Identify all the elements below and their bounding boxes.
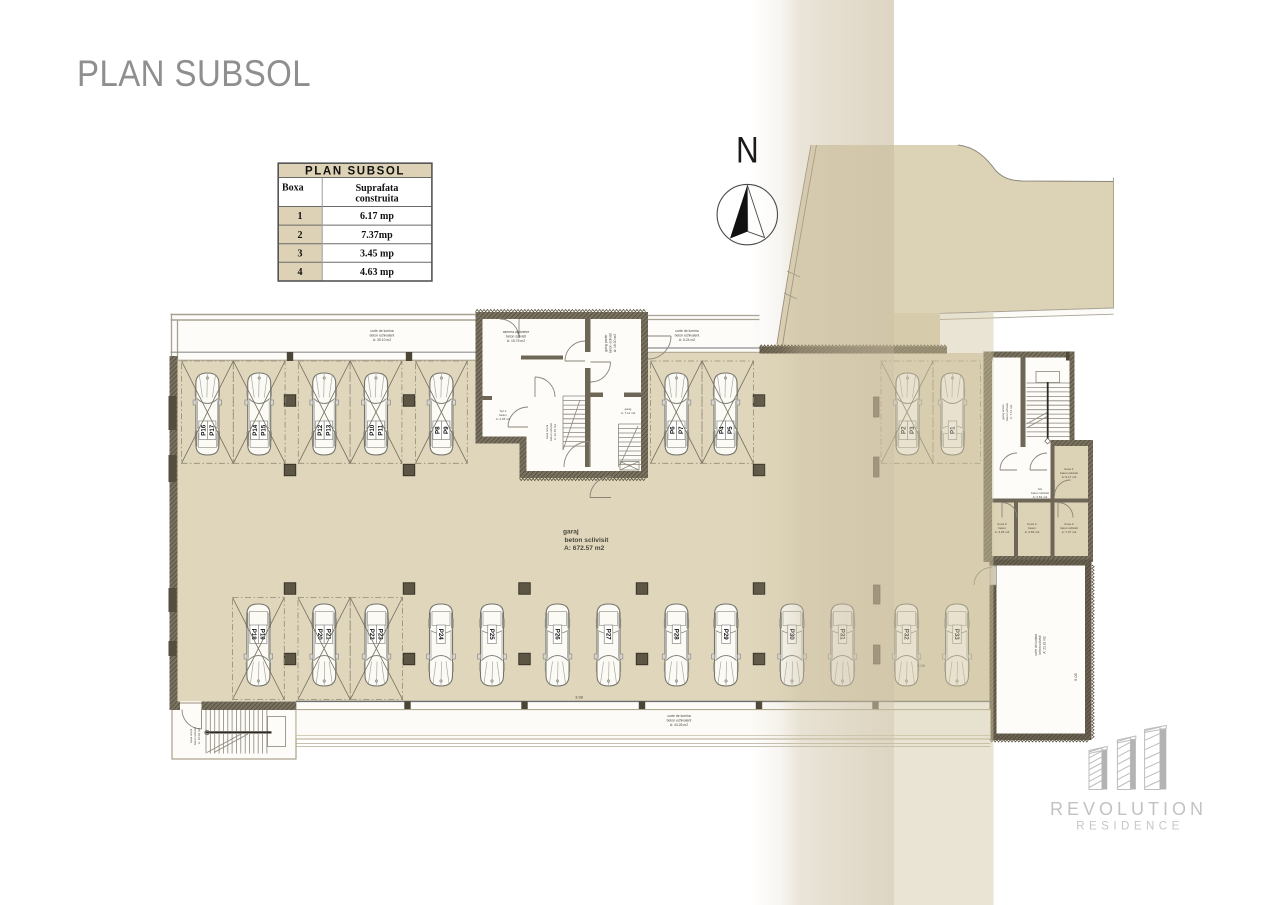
svg-text:PLAN SUBSOL: PLAN SUBSOL xyxy=(77,53,311,94)
svg-text:A: 4.35 m2: A: 4.35 m2 xyxy=(496,417,511,421)
svg-text:A: 12.15 m2: A: 12.15 m2 xyxy=(553,424,557,441)
svg-text:garaj: garaj xyxy=(563,529,579,536)
svg-text:P26: P26 xyxy=(553,629,560,641)
svg-text:P29: P29 xyxy=(722,629,729,641)
svg-text:5.05: 5.05 xyxy=(1073,672,1078,681)
svg-text:A: 6.17 m2: A: 6.17 m2 xyxy=(1062,475,1077,479)
svg-text:P4: P4 xyxy=(718,426,725,434)
svg-text:A: 7.11 m2: A: 7.11 m2 xyxy=(1009,405,1013,420)
svg-text:beton sclivisit: beton sclivisit xyxy=(608,333,612,353)
svg-text:A: 16.30 m2: A: 16.30 m2 xyxy=(613,334,617,352)
svg-text:2: 2 xyxy=(298,230,303,241)
svg-text:P23: P23 xyxy=(377,629,384,641)
svg-text:A: 44.26 m2: A: 44.26 m2 xyxy=(670,723,688,727)
svg-text:A: 21.92 m2: A: 21.92 m2 xyxy=(1042,636,1046,653)
svg-text:P19: P19 xyxy=(258,629,265,641)
svg-text:P21: P21 xyxy=(324,629,331,641)
svg-text:beton echivalent: beton echivalent xyxy=(667,718,692,722)
svg-text:PLAN SUBSOL: PLAN SUBSOL xyxy=(305,166,405,178)
svg-text:N: N xyxy=(736,130,759,171)
svg-text:RESIDENCE: RESIDENCE xyxy=(1076,821,1184,833)
svg-text:P27: P27 xyxy=(604,629,611,641)
svg-text:A: 15.75 m2: A: 15.75 m2 xyxy=(507,339,525,343)
svg-text:gang parter: gang parter xyxy=(604,333,608,351)
svg-text:A: 672.57 m2: A: 672.57 m2 xyxy=(564,545,605,552)
svg-text:A: 16.04 m2: A: 16.04 m2 xyxy=(197,728,201,745)
svg-text:A: 4.63 m2: A: 4.63 m2 xyxy=(1025,530,1040,534)
svg-text:1: 1 xyxy=(298,211,303,222)
svg-text:P24: P24 xyxy=(437,629,444,641)
svg-text:curte de lumina: curte de lumina xyxy=(370,329,393,333)
svg-text:A: 35.10 m2: A: 35.10 m2 xyxy=(373,338,391,342)
svg-text:beton sclivisit: beton sclivisit xyxy=(506,334,526,338)
svg-text:3: 3 xyxy=(298,248,303,259)
svg-text:P16: P16 xyxy=(200,424,207,436)
svg-text:P14: P14 xyxy=(252,424,259,436)
svg-text:A: 7.37 m2: A: 7.37 m2 xyxy=(1062,530,1077,534)
svg-text:3.98: 3.98 xyxy=(575,695,584,700)
svg-text:curte de lumina: curte de lumina xyxy=(675,329,698,333)
svg-text:6.17 mp: 6.17 mp xyxy=(360,211,394,222)
svg-text:REVOLUTION: REVOLUTION xyxy=(1050,799,1207,819)
svg-text:A: 3.45 m2: A: 3.45 m2 xyxy=(995,530,1010,534)
svg-text:construita: construita xyxy=(355,194,398,205)
svg-text:Boxa: Boxa xyxy=(282,183,304,194)
svg-text:P10: P10 xyxy=(369,424,376,436)
svg-text:beton sclivisit: beton sclivisit xyxy=(565,537,610,544)
svg-text:4: 4 xyxy=(298,267,303,278)
svg-text:P8: P8 xyxy=(434,426,441,434)
svg-text:3.45 mp: 3.45 mp xyxy=(360,248,394,259)
svg-text:camera apometre: camera apometre xyxy=(503,330,530,334)
svg-text:P6: P6 xyxy=(669,426,676,434)
svg-text:P12: P12 xyxy=(317,424,324,436)
svg-text:curte de lumina: curte de lumina xyxy=(667,714,690,718)
svg-text:P5: P5 xyxy=(727,426,734,434)
svg-text:Suprafata: Suprafata xyxy=(356,183,399,194)
svg-text:P28: P28 xyxy=(672,629,679,641)
svg-text:7.37mp: 7.37mp xyxy=(361,230,393,241)
svg-text:A: 7.11 m2: A: 7.11 m2 xyxy=(621,411,636,415)
svg-text:P25: P25 xyxy=(488,629,495,641)
svg-text:beton echivalent: beton echivalent xyxy=(370,333,395,337)
svg-text:4.63 mp: 4.63 mp xyxy=(360,267,394,278)
svg-text:A: 6.24 m2: A: 6.24 m2 xyxy=(679,338,696,342)
svg-text:A: 2.81 m2: A: 2.81 m2 xyxy=(1033,495,1048,499)
svg-text:beton echivalent: beton echivalent xyxy=(675,333,700,337)
